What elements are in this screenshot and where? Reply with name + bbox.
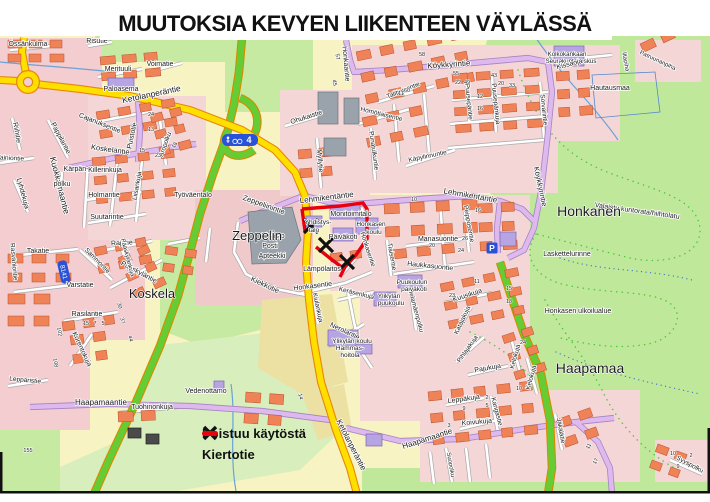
- house-number: 16: [477, 106, 483, 112]
- street-label: Holmantie: [88, 192, 120, 199]
- poi-label: Laskettelurinne: [543, 251, 591, 258]
- building: [50, 54, 64, 62]
- poi-label: Yhdistys-: [305, 219, 332, 226]
- poi-label: Puukoulun: [397, 279, 428, 286]
- poi-label: Ylikylän: [378, 293, 401, 300]
- legend-label: Kiertotie: [202, 447, 255, 462]
- house-number: 24: [458, 248, 464, 254]
- building: [556, 71, 570, 81]
- house-number: 11: [474, 279, 480, 285]
- building: [428, 391, 442, 401]
- red-line-icon: [196, 424, 222, 442]
- building: [104, 315, 115, 325]
- building: [117, 173, 129, 182]
- street-label: polku: [54, 181, 71, 188]
- house-number: 24: [148, 112, 154, 118]
- building: [145, 68, 161, 77]
- legend-item-detour: Kiertotie: [196, 445, 306, 463]
- building: [298, 149, 312, 159]
- building: [245, 392, 261, 403]
- poi-label: Voimatie: [147, 61, 174, 68]
- house-number: 5: [101, 321, 104, 327]
- area-label: Koskela: [129, 286, 176, 301]
- building: [522, 403, 534, 413]
- building: [269, 394, 284, 405]
- house-number: 60: [404, 88, 410, 94]
- main-road: [0, 80, 18, 81]
- building: [501, 202, 514, 212]
- building: [8, 54, 21, 62]
- street-label: Kärpän-: [64, 166, 90, 173]
- building: [502, 104, 517, 113]
- building: [139, 102, 151, 112]
- poi-label: Ylikylän koulu: [332, 338, 372, 345]
- building: [525, 85, 540, 94]
- building: [430, 413, 443, 423]
- house-number: 45: [330, 79, 337, 86]
- house-number: 23: [155, 153, 161, 159]
- poi-label: talo: [309, 227, 320, 234]
- building: [144, 52, 158, 61]
- building: [526, 102, 540, 111]
- house-number: 18: [506, 299, 512, 305]
- house-number: 10: [670, 451, 676, 457]
- poi-label: päiväkoti: [401, 286, 427, 293]
- house-number: 155: [23, 448, 32, 454]
- building: [94, 176, 107, 185]
- poi-label: koulu: [366, 229, 382, 236]
- poi-label: puukoulu: [378, 300, 405, 307]
- house-number: 55: [453, 71, 459, 77]
- building: [100, 56, 116, 65]
- building: [479, 222, 492, 232]
- area-label: Zeppelin: [232, 228, 282, 243]
- building: [92, 157, 106, 166]
- house-number: 3: [447, 423, 450, 429]
- area-label: Honkanen: [557, 203, 621, 219]
- building: [384, 203, 400, 214]
- house-number: 43: [491, 73, 497, 79]
- poi-label: Hautausmaa: [590, 85, 630, 92]
- building: [410, 202, 425, 213]
- building: [34, 294, 50, 304]
- cycle-route-badge: 4: [222, 134, 258, 146]
- house-number: 13: [148, 127, 154, 133]
- house-number: 15: [139, 148, 145, 154]
- building: [442, 244, 455, 254]
- street-label: Varstatie: [66, 282, 93, 289]
- area-label: Haapamaa: [556, 360, 625, 376]
- street-label: Suutarintie: [90, 214, 124, 221]
- building: [165, 246, 178, 256]
- street-label: Manasuontie: [418, 236, 458, 243]
- house-number: 12: [477, 94, 483, 100]
- map-canvas: 8141 4 P KetolanperäntieKuokkamaantieKos…: [0, 0, 710, 502]
- poi-label: Paloasema: [103, 86, 138, 93]
- building: [8, 294, 25, 304]
- building: [456, 124, 472, 133]
- house-number: 58: [419, 52, 425, 58]
- house-number: 20: [429, 243, 435, 249]
- building: [185, 249, 197, 258]
- building: [455, 432, 469, 442]
- parking-badge: P: [487, 243, 498, 254]
- building: [579, 106, 593, 116]
- building: [385, 226, 400, 237]
- building: [503, 121, 517, 130]
- poi-label: Posti: [262, 243, 278, 250]
- poi-label: Honkasen ulkoilualue: [545, 308, 612, 315]
- building: [479, 122, 494, 131]
- building: [501, 427, 513, 437]
- building: [34, 316, 49, 326]
- building: [300, 168, 313, 178]
- building: [62, 320, 75, 331]
- page-title: MUUTOKSIA KEVYEN LIIKENTEEN VÄYLÄSSÄ: [0, 9, 710, 39]
- building: [163, 263, 175, 272]
- building: [559, 107, 571, 117]
- building: [524, 68, 540, 77]
- building: [29, 54, 41, 62]
- pedestrian-icon: [227, 137, 230, 140]
- street-label: Vainiontie: [0, 154, 25, 162]
- building: [476, 71, 491, 80]
- building: [118, 411, 134, 422]
- poi-label: Vedenottamo: [185, 388, 226, 395]
- house-number: 22: [455, 80, 461, 86]
- building: [500, 70, 514, 79]
- building: [50, 40, 62, 48]
- building: [8, 316, 24, 326]
- building: [182, 266, 193, 275]
- building: [141, 410, 156, 421]
- house-number: 49: [464, 80, 470, 86]
- building: [557, 89, 570, 99]
- building: [478, 430, 491, 440]
- svg-text:4: 4: [246, 135, 251, 145]
- poi-label: Työväentalo: [174, 192, 212, 199]
- building: [142, 190, 155, 199]
- building: [411, 225, 425, 236]
- house-number: 9: [676, 464, 679, 470]
- street-label: Takatie: [27, 248, 49, 255]
- house-number: 2: [485, 395, 488, 401]
- poi-label: hoitola: [340, 352, 360, 359]
- building: [118, 106, 131, 116]
- building: [95, 350, 107, 360]
- house-number: 20: [498, 81, 504, 87]
- building: [122, 54, 137, 63]
- house-number: 24: [520, 340, 526, 346]
- street-label: Rasilantie: [72, 311, 103, 318]
- building: [577, 70, 590, 80]
- map-legend: Poistuu käytöstä Kiertotie: [196, 424, 306, 466]
- poi-label: Össänkulma: [9, 40, 48, 48]
- building: [578, 88, 590, 98]
- map-screenshot: 8141 4 P KetolanperäntieKuokkamaantieKos…: [0, 0, 710, 502]
- poi-label: Päiväkoti: [329, 234, 358, 241]
- building: [502, 221, 514, 231]
- building: [32, 254, 46, 263]
- house-number: 5: [485, 403, 488, 409]
- building: [524, 425, 538, 435]
- street-label: Killerinkuja: [88, 167, 122, 174]
- house-number: 26: [462, 236, 468, 242]
- building: [527, 119, 543, 128]
- building: [93, 331, 106, 342]
- building: [436, 201, 450, 212]
- building: [476, 408, 490, 418]
- house-number: 16: [475, 208, 481, 214]
- building: [32, 273, 45, 282]
- house-number: 15: [506, 286, 512, 292]
- poi-label: Merituuli: [105, 66, 132, 73]
- house-number: 15: [83, 321, 89, 327]
- house-number: 23: [449, 293, 455, 299]
- street-label: Tuohinonkuja: [131, 404, 173, 411]
- street-label: Haapamaantie: [75, 398, 128, 407]
- building: [163, 168, 176, 177]
- house-number: 10: [411, 197, 417, 203]
- poi-label: Hammas-: [336, 345, 364, 352]
- building: [437, 223, 453, 234]
- poi-label: Honkasen: [356, 221, 386, 228]
- poi-label: Monitoimitalo: [330, 211, 371, 218]
- poi-label: Apteekki: [259, 253, 286, 260]
- building: [244, 413, 259, 424]
- svg-text:P: P: [489, 243, 495, 253]
- house-number: 2: [689, 453, 692, 459]
- poi-label: Kolkokankaan: [548, 51, 587, 58]
- house-number: 7: [93, 321, 96, 327]
- house-number: 9: [462, 406, 465, 412]
- house-number: 10: [516, 386, 522, 392]
- house-number: 57: [333, 53, 340, 60]
- house-number: 33: [509, 83, 515, 89]
- building: [497, 383, 511, 393]
- poi-label: Lämpölaitos: [303, 266, 341, 273]
